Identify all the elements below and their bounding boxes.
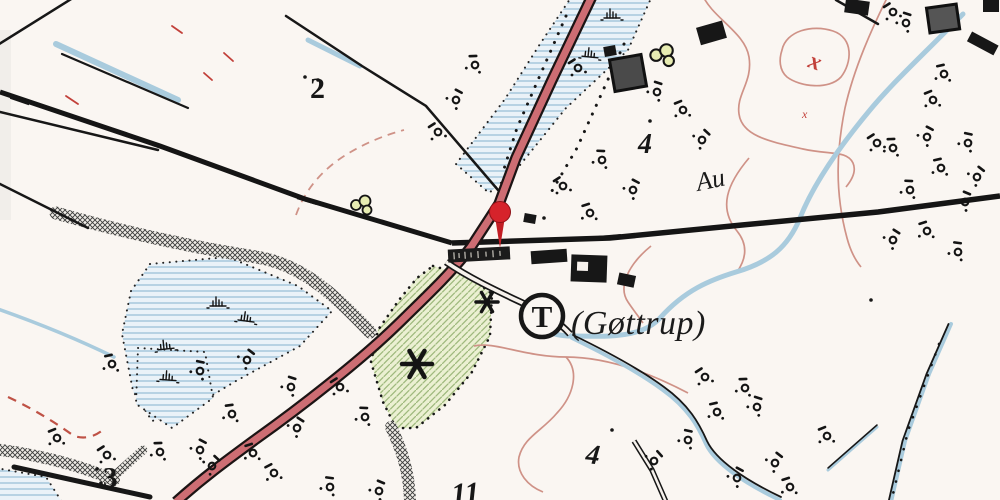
parcel-number-4-upper: 4 [637, 129, 652, 160]
halt-symbol: T [521, 295, 563, 337]
parcel-number-3: 3 [103, 462, 118, 494]
map-viewport[interactable]: T (Gøttrup) Au 2 4 4 3 11 x x [0, 0, 1000, 500]
halt-symbol-letter: T [532, 299, 553, 334]
red-x-mark-small: x [801, 107, 808, 121]
scan-artifact [0, 30, 11, 220]
parcel-number-11: 11 [450, 476, 481, 500]
parcel-number-2: 2 [310, 72, 325, 105]
place-label: (Gøttrup) [571, 305, 706, 342]
map-canvas: T (Gøttrup) Au 2 4 4 3 11 x x [0, 0, 1000, 500]
